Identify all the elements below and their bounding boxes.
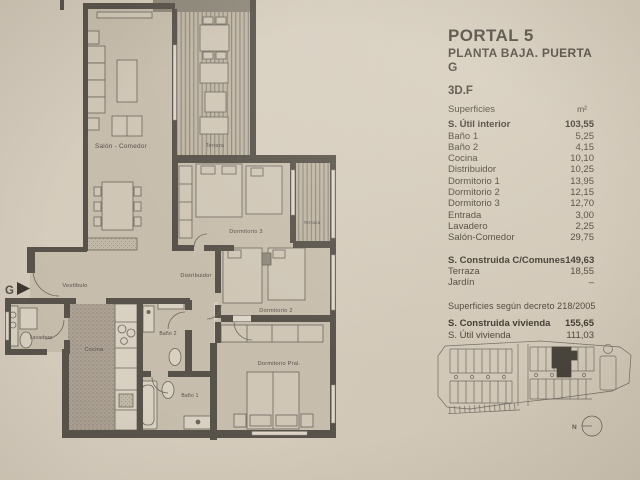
lounger <box>200 63 228 83</box>
unit-code: 3D.F <box>448 85 594 98</box>
window <box>173 45 176 120</box>
fridge <box>119 394 133 407</box>
row-value: 111,03 <box>566 330 594 341</box>
terrace-chair <box>203 52 213 59</box>
row-label: Jardín <box>448 277 474 288</box>
room-label-salon: Salón - Comedor <box>95 143 148 150</box>
pillow <box>273 250 285 258</box>
terrace-side-table <box>205 92 226 112</box>
shower <box>143 306 154 332</box>
table-row: S. Útil vivienda111,03 <box>448 330 594 341</box>
surfaces-header-label: Superficies <box>448 104 495 115</box>
interior-areas-table: S. Útil interior103,55 Baño 15,25 Baño 2… <box>448 119 594 243</box>
decree-note: Superficies según decreto 218/2005 <box>448 300 594 313</box>
constructed-areas-table: S. Construida C/Comunes149,63 Terraza18,… <box>448 255 594 289</box>
row-label: S. Útil vivienda <box>448 330 511 341</box>
row-label: S. Construida C/Comunes <box>448 255 565 266</box>
table-row: Dormitorio 212,15 <box>448 187 594 198</box>
row-label: Dormitorio 1 <box>448 176 500 187</box>
row-value: 2,25 <box>576 221 595 232</box>
chair <box>94 187 101 196</box>
chair <box>134 202 141 211</box>
pillow <box>222 166 236 174</box>
row-label: Salón-Comedor <box>448 232 515 243</box>
row-value: – <box>589 277 594 288</box>
row-label: Baño 2 <box>448 142 478 153</box>
entrance-letter: G <box>5 285 14 297</box>
m2-unit-label: m² <box>577 104 594 115</box>
spec-panel: PORTAL 5 PLANTA BAJA. PUERTA G 3D.F Supe… <box>448 26 594 341</box>
room-label-terraza-top: Terraza <box>206 143 224 149</box>
row-value: 149,63 <box>565 255 594 266</box>
row-value: 103,55 <box>565 119 594 130</box>
room-label-dorm3: Dormitorio 3 <box>229 229 262 235</box>
sideboard <box>87 238 137 250</box>
portal-title: PORTAL 5 <box>448 26 594 45</box>
toilet <box>162 382 174 399</box>
window <box>332 255 336 310</box>
terrace-chair <box>216 17 226 24</box>
pillow <box>250 415 271 426</box>
row-value: 18,55 <box>570 266 594 277</box>
table-row: Distribuidor10,25 <box>448 164 594 175</box>
highlighted-unit <box>552 347 577 377</box>
row-value: 10,10 <box>570 153 594 164</box>
room-label-bano1: Baño 1 <box>181 393 198 399</box>
nightstand <box>234 414 246 427</box>
room-label-lavadero: Lavadero <box>30 335 53 341</box>
table-row: Terraza18,55 <box>448 266 594 277</box>
row-label: Dormitorio 3 <box>448 198 500 209</box>
room-label-dorm-pral: Dormitorio Pral. <box>258 361 301 367</box>
entrance-marker: G <box>5 282 30 297</box>
table-row: Lavadero2,25 <box>448 221 594 232</box>
dwelling-areas-table: S. Construida vivienda155,65 S. Útil viv… <box>448 318 594 341</box>
room-label-bano2: Baño 2 <box>159 331 176 337</box>
room-label-cocina: Cocina <box>85 347 105 353</box>
site-plan: N <box>438 341 631 436</box>
table-row: Baño 15,25 <box>448 131 594 142</box>
row-label: S. Útil interior <box>448 119 510 130</box>
side-table <box>87 31 99 44</box>
site-courtyard <box>600 356 616 390</box>
row-value: 155,65 <box>565 318 594 329</box>
pillow <box>228 250 241 258</box>
row-value: 4,15 <box>576 142 595 153</box>
room-label-dorm2: Dormitorio 2 <box>259 308 292 314</box>
pillow <box>201 166 215 174</box>
floor-door-subtitle: PLANTA BAJA. PUERTA G <box>448 46 594 74</box>
chair <box>134 217 141 226</box>
photographed-floorplan-sheet: { "panel": { "title": "PORTAL 5", "subti… <box>0 0 640 480</box>
row-value: 5,25 <box>576 131 595 142</box>
toilet <box>169 349 181 366</box>
kitchen-floor <box>68 304 115 432</box>
terrace-door <box>291 170 295 215</box>
chair <box>94 202 101 211</box>
room-label-vestibulo: Vestíbulo <box>62 283 87 289</box>
row-label: Dormitorio 2 <box>448 187 500 198</box>
table-row: Dormitorio 113,95 <box>448 176 594 187</box>
window <box>6 312 9 340</box>
row-label: Entrada <box>448 210 481 221</box>
table-header: Superficies m² <box>448 104 594 115</box>
row-label: Terraza <box>448 266 480 277</box>
row-value: 12,15 <box>570 187 594 198</box>
table-row: Salón-Comedor29,75 <box>448 232 594 243</box>
tv-cabinet <box>97 12 152 18</box>
door-opening <box>233 316 251 322</box>
window <box>252 432 307 436</box>
row-label: S. Construida vivienda <box>448 318 550 329</box>
coffee-table <box>117 60 137 102</box>
window <box>332 385 336 423</box>
terrace-chair <box>216 52 226 59</box>
north-compass <box>582 416 602 436</box>
room-label-distribuidor: Distribuidor <box>180 273 211 279</box>
nightstand <box>262 253 271 265</box>
table-row: S. Construida vivienda155,65 <box>448 318 594 329</box>
dining-table <box>102 182 133 230</box>
row-label: Baño 1 <box>448 131 478 142</box>
lounger <box>200 117 228 134</box>
row-label: Cocina <box>448 153 478 164</box>
table-row: Baño 24,15 <box>448 142 594 153</box>
table-row: Jardín– <box>448 277 594 288</box>
kitchen-counter <box>115 304 137 430</box>
table-row: Cocina10,10 <box>448 153 594 164</box>
table-row: Entrada3,00 <box>448 210 594 221</box>
room-label-terraza-right: Terraza <box>304 220 321 225</box>
pillow <box>251 168 263 176</box>
row-value: 3,00 <box>576 210 595 221</box>
row-label: Distribuidor <box>448 164 496 175</box>
room-fills <box>8 8 332 432</box>
chair <box>94 217 101 226</box>
table-row: S. Construida C/Comunes149,63 <box>448 255 594 266</box>
table-row: S. Útil interior103,55 <box>448 119 594 130</box>
terrace-deck-right <box>294 163 332 243</box>
row-value: 13,95 <box>570 176 594 187</box>
side-table <box>87 118 99 130</box>
nightstand <box>301 414 313 427</box>
row-value: 10,25 <box>570 164 594 175</box>
table-row: Dormitorio 312,70 <box>448 198 594 209</box>
washing-machine <box>20 308 37 329</box>
row-value: 12,70 <box>570 198 594 209</box>
row-value: 29,75 <box>570 232 594 243</box>
row-label: Lavadero <box>448 221 488 232</box>
terrace-chair <box>203 17 213 24</box>
north-label: N <box>572 424 577 431</box>
terrace-railing <box>332 170 336 238</box>
entrance-arrow-icon <box>17 282 30 295</box>
chair <box>134 187 141 196</box>
terrace-table <box>200 25 229 51</box>
pillow <box>276 415 297 426</box>
